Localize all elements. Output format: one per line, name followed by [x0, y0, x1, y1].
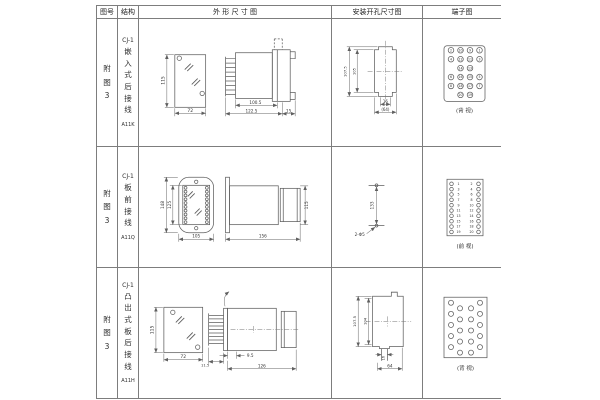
svg-text:8: 8 [450, 84, 452, 88]
header-fig-no: 图号 [97, 6, 118, 19]
fig-number: 附图3 [103, 313, 111, 354]
svg-text:1: 1 [457, 182, 459, 186]
dim-cutout-width: (64) [381, 107, 390, 112]
dim-flange-offset: 9.5 [247, 353, 254, 358]
header-install: 安装开孔尺寸图 [332, 6, 423, 19]
spec-table: 图号 结构 外 形 尺 寸 图 安装开孔尺寸图 端子图 附图3 CJ-1 嵌入式… [96, 5, 501, 399]
view-label: (前 视) [456, 242, 473, 250]
svg-text:7: 7 [457, 198, 459, 202]
structure-cell-a11q: CJ-1 板前接线 A11Q [118, 147, 139, 268]
svg-text:10: 10 [469, 203, 473, 207]
datasheet-page: 图号 结构 外 形 尺 寸 图 安装开孔尺寸图 端子图 附图3 CJ-1 嵌入式… [0, 0, 600, 400]
terminal-numbers: 2 10 9 1 4 12 11 3 14 13 6 16 15 5 8 18 [450, 48, 481, 97]
structure-code: A11Q [121, 235, 135, 241]
svg-text:7: 7 [478, 84, 480, 88]
outline-cell-a11q: 148 125 105 156 115 [139, 147, 332, 268]
dim-front-height: 115 [149, 326, 155, 335]
dim-pin-length: 11.5 [201, 362, 210, 367]
svg-text:17: 17 [468, 84, 472, 88]
svg-text:16: 16 [469, 219, 473, 223]
svg-text:20: 20 [458, 93, 462, 97]
structure-cell-a11k: CJ-1 嵌入式后接线 A11K [118, 19, 139, 147]
install-cell-a11k: 107.5 105 16 (64) [332, 19, 423, 147]
fig-number: 附图3 [103, 62, 111, 103]
svg-text:5: 5 [457, 193, 459, 197]
terminal-diagram-a11q: 12 34 56 78 910 1112 1314 1516 1718 1920… [423, 147, 501, 267]
terminal-diagram-a11k: 2 10 9 1 4 12 11 3 14 13 6 16 15 5 8 18 [423, 19, 501, 146]
svg-text:19: 19 [468, 93, 472, 97]
install-cell-a11q: 133 2-Φ5 [332, 147, 423, 268]
fig-cell-a11h: 附图3 [97, 268, 118, 398]
dim-cutout-inner-height: 105 [352, 67, 356, 75]
front-dimension-lines [154, 307, 203, 361]
svg-text:6: 6 [450, 75, 452, 79]
view-label: (背 视) [456, 106, 473, 114]
structure-cell-a11h: CJ-1 凸出式板后接线 A11H [118, 268, 139, 398]
header-outline: 外 形 尺 寸 图 [139, 6, 332, 19]
svg-text:12: 12 [469, 209, 473, 213]
dim-hole-spacing: 133 [369, 201, 374, 209]
install-dimension-lines [347, 47, 396, 114]
svg-text:8: 8 [470, 198, 472, 202]
svg-text:3: 3 [478, 57, 480, 61]
dim-front-width: 72 [180, 354, 186, 360]
front-view [175, 55, 206, 108]
structure-code: A11H [121, 378, 135, 384]
svg-text:2: 2 [450, 48, 452, 52]
svg-text:14: 14 [458, 66, 462, 70]
panel-cutout [373, 292, 404, 361]
outline-drawing-a11q: 148 125 105 156 115 [139, 147, 331, 267]
svg-text:16: 16 [458, 75, 462, 79]
dim-side-length: 156 [259, 234, 267, 239]
svg-text:12: 12 [458, 57, 462, 61]
dim-front-outer-height: 148 [160, 201, 165, 209]
dim-front-inner-height: 125 [167, 201, 172, 209]
terminal-diagram-a11h: (背 视) [423, 268, 501, 398]
view-label: (背 视) [457, 364, 474, 372]
svg-text:18: 18 [469, 225, 473, 229]
dim-slot-width: 16 [381, 355, 385, 360]
outline-cell-a11k: 115 72 100.5 122.5 15 [139, 19, 332, 147]
terminal-cell-a11k: 2 10 9 1 4 12 11 3 14 13 6 16 15 5 8 18 [423, 19, 501, 147]
terminal-pins [450, 182, 481, 234]
svg-text:11: 11 [456, 209, 460, 213]
dim-front-height: 115 [160, 76, 166, 85]
install-cell-a11h: 107.5 104 16 64 [332, 268, 423, 398]
terminal-pins [448, 47, 482, 97]
dim-cutout-outer-height: 107.5 [352, 315, 357, 327]
svg-text:15: 15 [456, 219, 460, 223]
svg-text:19: 19 [456, 230, 460, 234]
front-view [164, 307, 203, 352]
dim-cutout-width: 64 [387, 363, 393, 368]
fig-cell-a11k: 附图3 [97, 19, 118, 147]
svg-text:10: 10 [458, 48, 462, 52]
dim-cutout-inner-height: 104 [363, 317, 368, 325]
dim-slot-width: 16 [383, 99, 389, 104]
side-view [209, 292, 297, 351]
dim-side-overall: 122.5 [245, 108, 257, 113]
dim-side-front: 15 [286, 108, 292, 113]
svg-text:9: 9 [469, 48, 471, 52]
model-label: CJ-1 [122, 37, 134, 44]
svg-text:2: 2 [470, 182, 472, 186]
svg-text:13: 13 [468, 66, 472, 70]
svg-text:13: 13 [456, 214, 460, 218]
terminal-numbers: 12 34 56 78 910 1112 1314 1516 1718 1920 [456, 182, 473, 234]
svg-text:9: 9 [457, 203, 459, 207]
front-terminal-strips [184, 186, 208, 223]
svg-text:6: 6 [470, 193, 472, 197]
outline-drawing-a11h: 115 72 11 [139, 268, 331, 398]
svg-text:11: 11 [468, 57, 472, 61]
outline-drawing-a11k: 115 72 100.5 122.5 15 [139, 19, 331, 146]
side-view [226, 39, 296, 102]
terminal-pins [449, 300, 483, 355]
terminal-block-outline [444, 46, 485, 102]
terminal-cell-a11q: 12 34 56 78 910 1112 1314 1516 1718 1920… [423, 147, 501, 268]
header-structure: 结构 [118, 6, 139, 19]
svg-text:20: 20 [469, 230, 473, 234]
fig-number: 附图3 [103, 187, 111, 228]
header-terminal: 端子图 [423, 6, 501, 19]
install-drawing-a11h: 107.5 104 16 64 [332, 268, 422, 398]
dim-front-width: 105 [192, 234, 200, 239]
terminal-cell-a11h: (背 视) [423, 268, 501, 398]
svg-text:4: 4 [450, 57, 452, 61]
svg-text:14: 14 [469, 214, 473, 218]
structure-label: 嵌入式后接线 [124, 46, 132, 116]
svg-text:5: 5 [478, 75, 480, 79]
svg-text:1: 1 [478, 48, 480, 52]
dim-front-width: 72 [187, 108, 193, 114]
install-drawing-a11q: 133 2-Φ5 [332, 147, 422, 267]
svg-text:15: 15 [468, 75, 472, 79]
dim-body-length: 126 [258, 363, 266, 368]
structure-code: A11K [121, 122, 134, 128]
hole-spec-label: 2-Φ5 [355, 232, 365, 237]
side-dimension-lines [209, 348, 297, 371]
svg-text:3: 3 [457, 187, 459, 191]
front-view [179, 177, 214, 232]
svg-text:18: 18 [458, 84, 462, 88]
dim-side-depth: 100.5 [249, 100, 261, 105]
fig-cell-a11q: 附图3 [97, 147, 118, 268]
structure-label: 板前接线 [124, 182, 132, 229]
model-label: CJ-1 [122, 173, 134, 180]
install-drawing-a11k: 107.5 105 16 (64) [332, 19, 422, 146]
svg-text:4: 4 [470, 187, 472, 191]
structure-label: 凸出式板后接线 [124, 291, 132, 372]
svg-text:17: 17 [456, 225, 460, 229]
dim-cutout-outer-height: 107.5 [344, 66, 348, 77]
install-dimension-lines [356, 296, 402, 371]
side-view [226, 177, 301, 232]
model-label: CJ-1 [122, 282, 134, 289]
dim-side-height: 115 [304, 201, 309, 209]
outline-cell-a11h: 115 72 11 [139, 268, 332, 398]
